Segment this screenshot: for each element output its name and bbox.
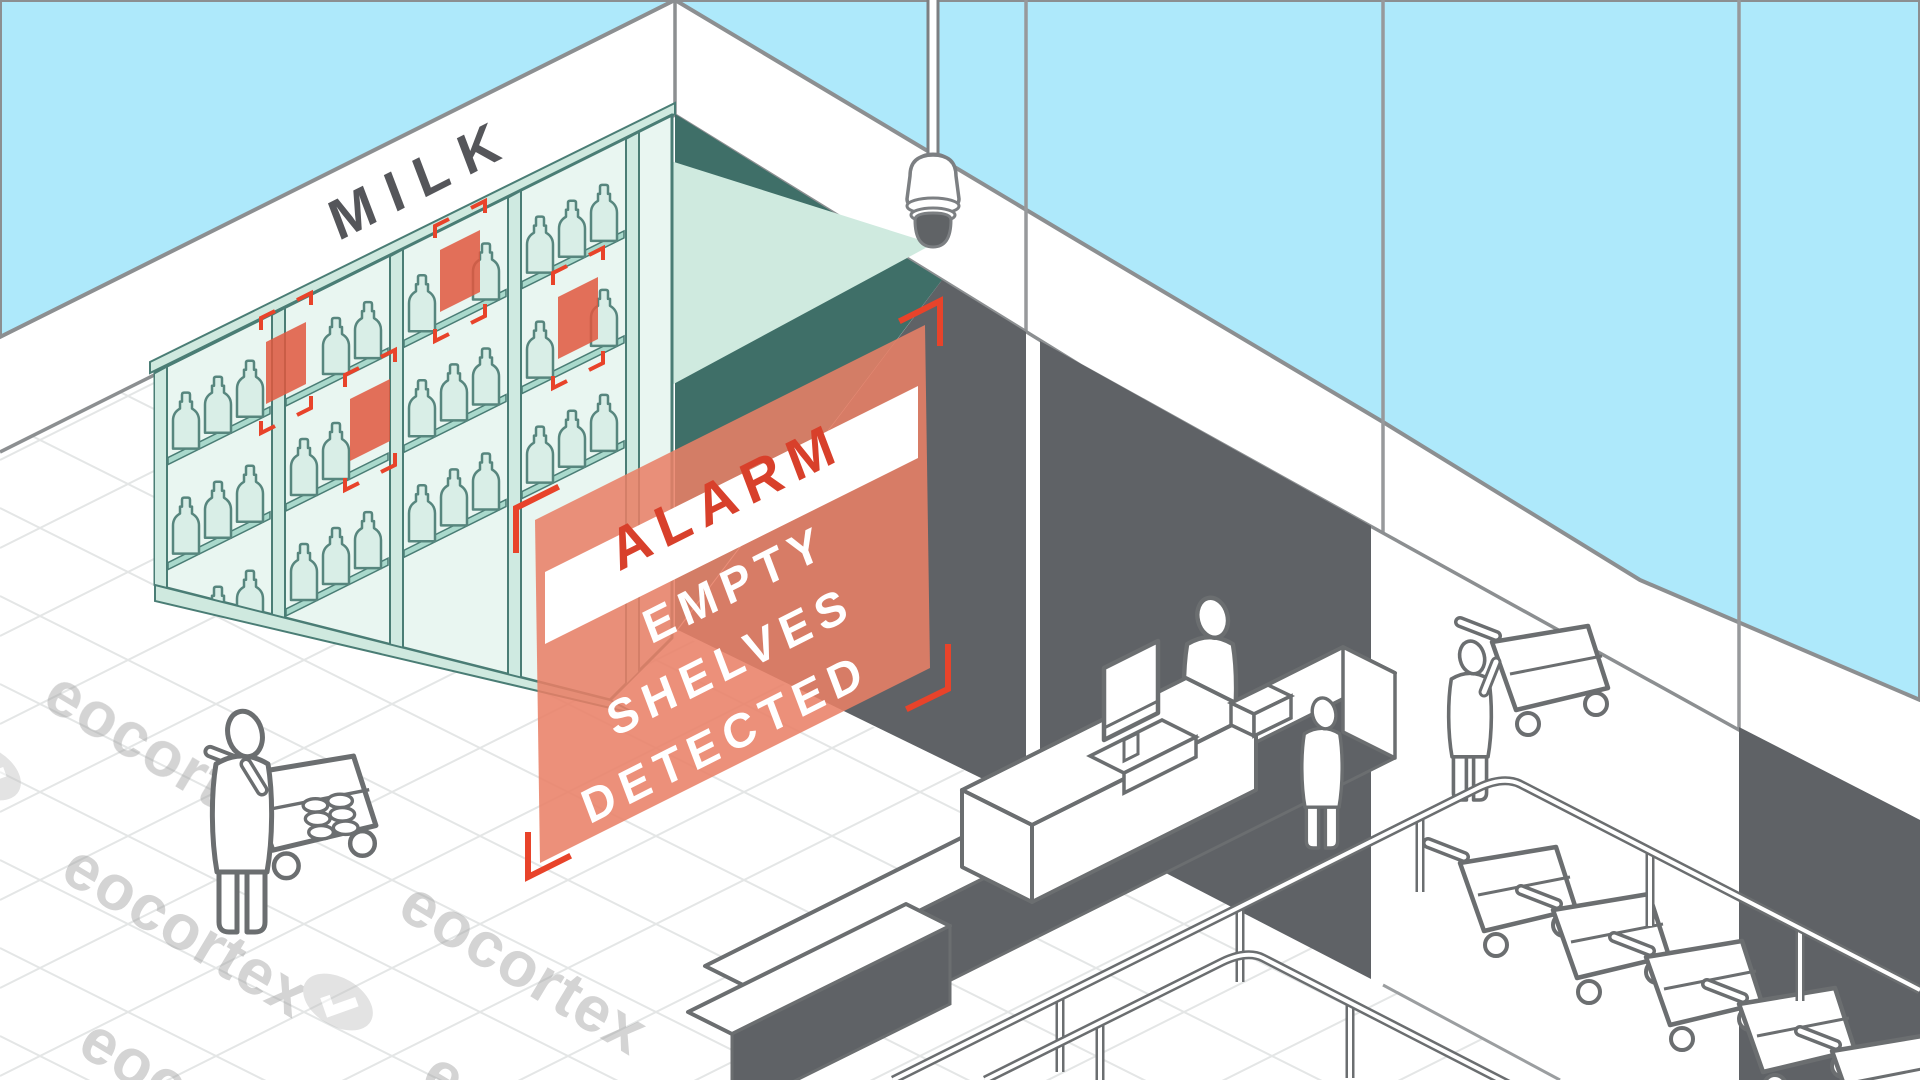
entrance-shopper <box>1449 622 1608 800</box>
isometric-store-illustration: eocortex eocortex eocortex eocortex eoco… <box>0 0 1920 1080</box>
person <box>1449 638 1492 800</box>
left-shopper <box>210 708 376 932</box>
person <box>212 708 271 932</box>
scene-canvas: eocortex eocortex eocortex eocortex eoco… <box>0 0 1920 1080</box>
shopping-cart-icon <box>1707 984 1855 1080</box>
watermark-clock-logo-icon <box>0 732 31 812</box>
cart-items-cans <box>303 794 358 839</box>
watermark-text: eocortex <box>411 1035 684 1080</box>
